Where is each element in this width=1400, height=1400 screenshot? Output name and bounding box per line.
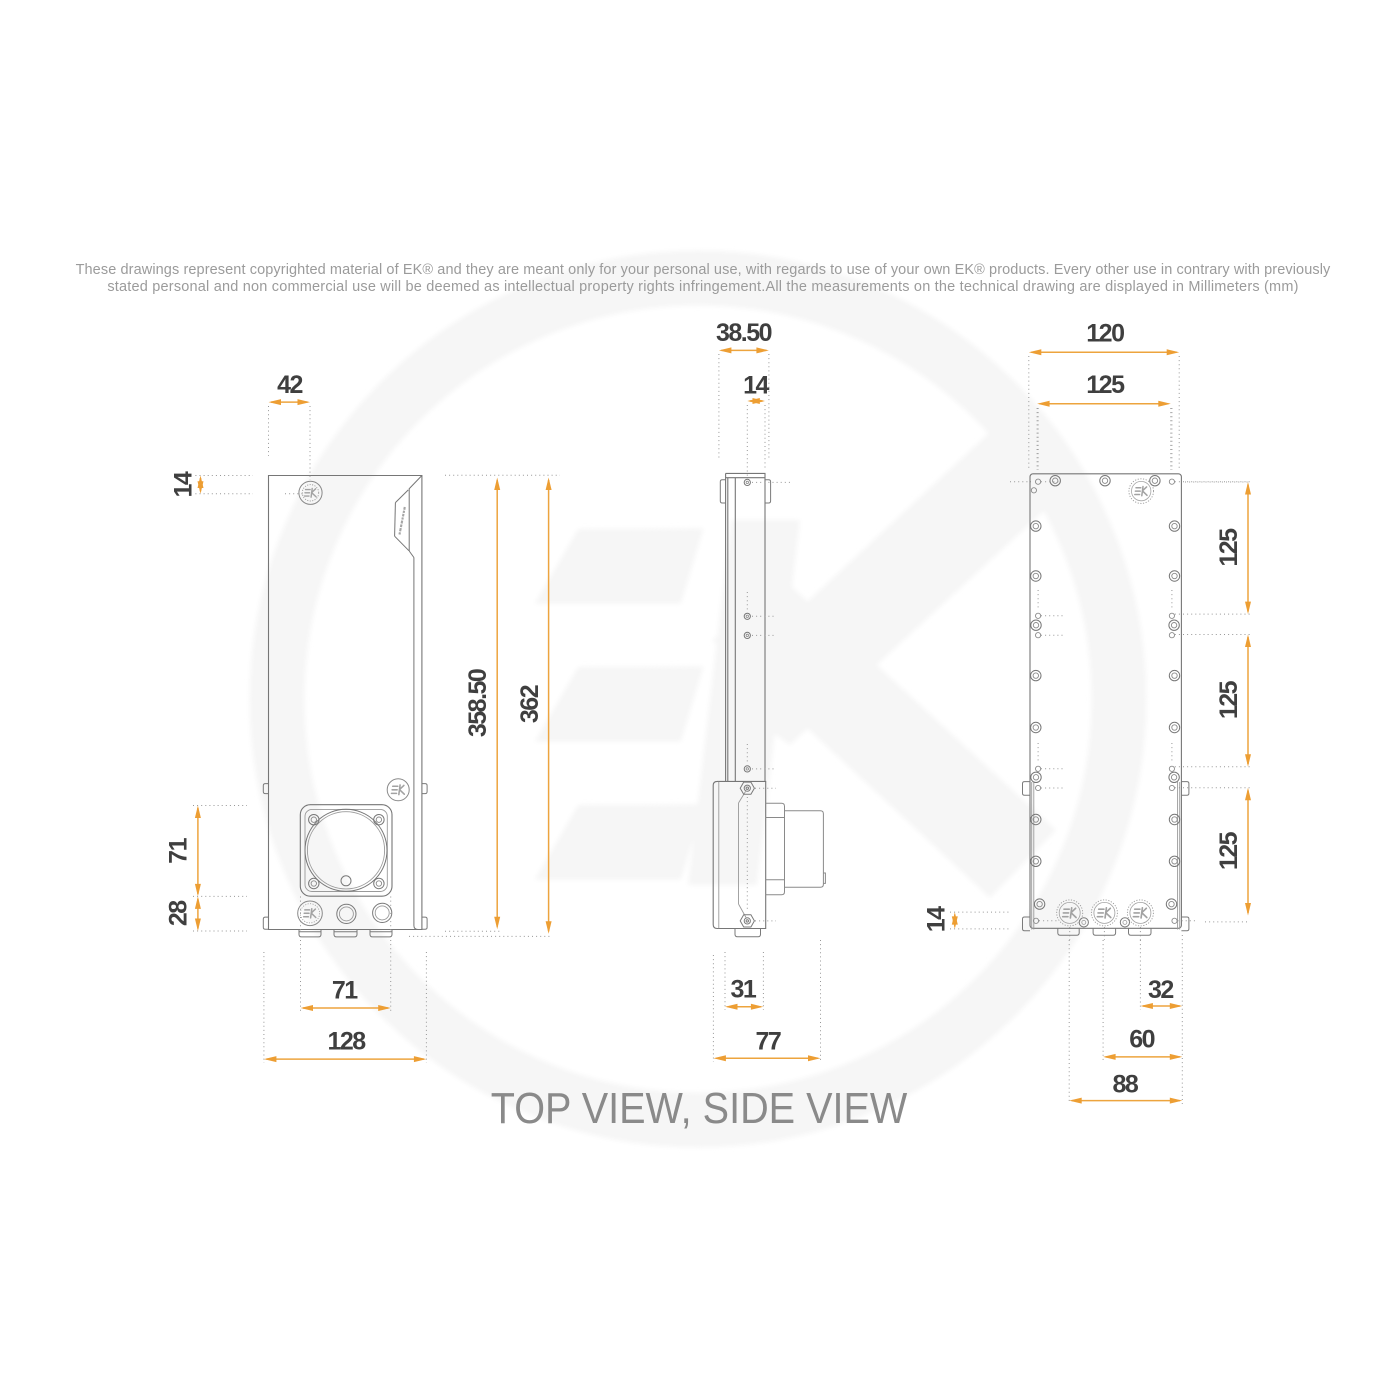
- svg-text:128: 128: [327, 1027, 366, 1055]
- svg-text:120: 120: [1086, 319, 1124, 347]
- svg-text:14: 14: [169, 471, 197, 497]
- svg-text:stated personal and non commer: stated personal and non commercial use w…: [107, 279, 1298, 295]
- svg-text:60: 60: [1129, 1026, 1154, 1054]
- svg-text:71: 71: [164, 837, 192, 863]
- svg-text:31: 31: [730, 975, 756, 1003]
- svg-text:362: 362: [516, 685, 544, 723]
- svg-text:125: 125: [1215, 680, 1243, 719]
- svg-text:125: 125: [1086, 371, 1125, 399]
- svg-text:14: 14: [923, 906, 951, 932]
- svg-text:125: 125: [1215, 831, 1243, 870]
- svg-text:125: 125: [1215, 528, 1243, 567]
- svg-text:42: 42: [277, 371, 302, 399]
- svg-text:14: 14: [743, 372, 769, 400]
- svg-text:TOP VIEW, SIDE VIEW: TOP VIEW, SIDE VIEW: [491, 1083, 908, 1132]
- svg-text:These drawings represent copyr: These drawings represent copyrighted mat…: [76, 262, 1331, 278]
- svg-text:88: 88: [1112, 1070, 1138, 1098]
- svg-text:358.50: 358.50: [464, 669, 492, 737]
- svg-text:71: 71: [332, 977, 358, 1005]
- svg-text:77: 77: [755, 1027, 780, 1055]
- svg-text:38.50: 38.50: [716, 319, 772, 347]
- svg-text:32: 32: [1148, 976, 1173, 1004]
- svg-text:28: 28: [164, 900, 192, 926]
